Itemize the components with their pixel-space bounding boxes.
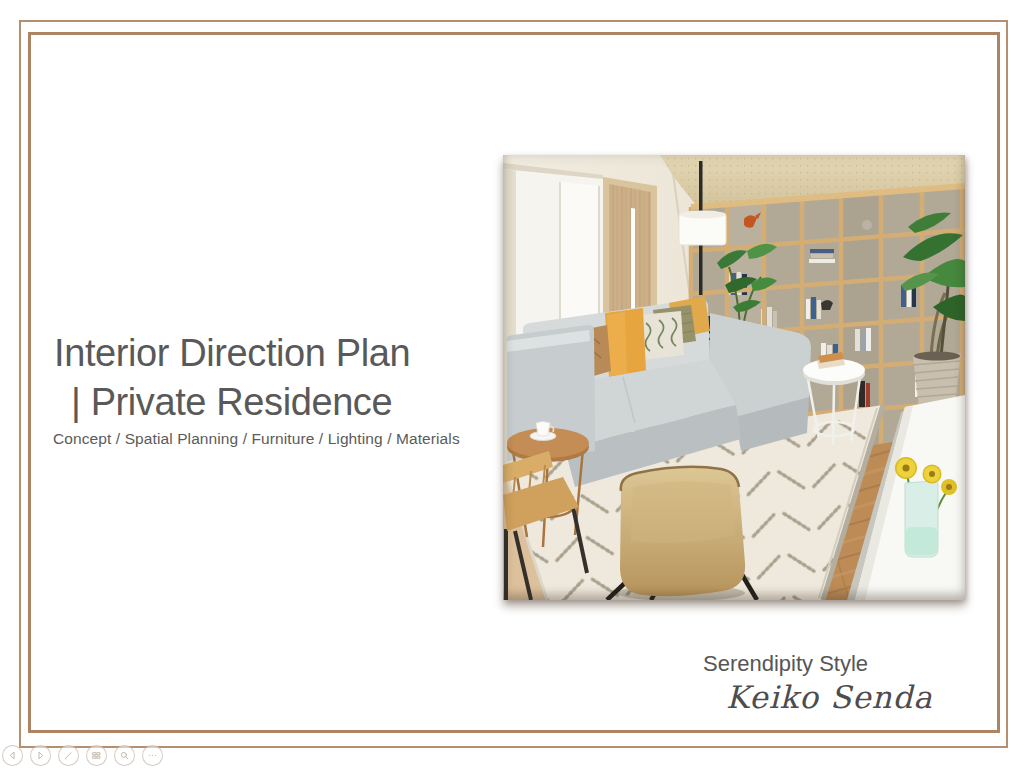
credit-studio: Serendipity Style [703,651,868,677]
title-line-1: Interior Direction Plan [54,332,410,374]
chevron-left-icon [6,749,19,762]
zoom-slide-button[interactable] [114,745,135,766]
tan-chair [607,467,757,600]
title-line-2: | Private Residence [54,378,410,427]
presentation-slide: Interior Direction Plan | Private Reside… [0,0,1024,773]
magnifier-icon [118,749,131,762]
all-slides-button[interactable] [86,745,107,766]
slide-subtitle: Concept / Spatial Planning / Furniture /… [53,430,460,448]
annotate-pen-button[interactable] [58,745,79,766]
previous-slide-button[interactable] [2,745,23,766]
credit-author-signature: Keiko Senda [726,679,933,715]
page-title: Interior Direction Plan | Private Reside… [54,329,410,427]
grid-icon [90,749,103,762]
sphere-decor [862,220,872,230]
living-room-render-svg [503,155,965,600]
pen-icon [62,749,75,762]
next-slide-button[interactable] [30,745,51,766]
ellipsis-icon [146,749,159,762]
chevron-right-icon [34,749,47,762]
more-options-button[interactable] [142,745,163,766]
living-room-render [503,155,965,600]
slideshow-controls [2,745,163,766]
